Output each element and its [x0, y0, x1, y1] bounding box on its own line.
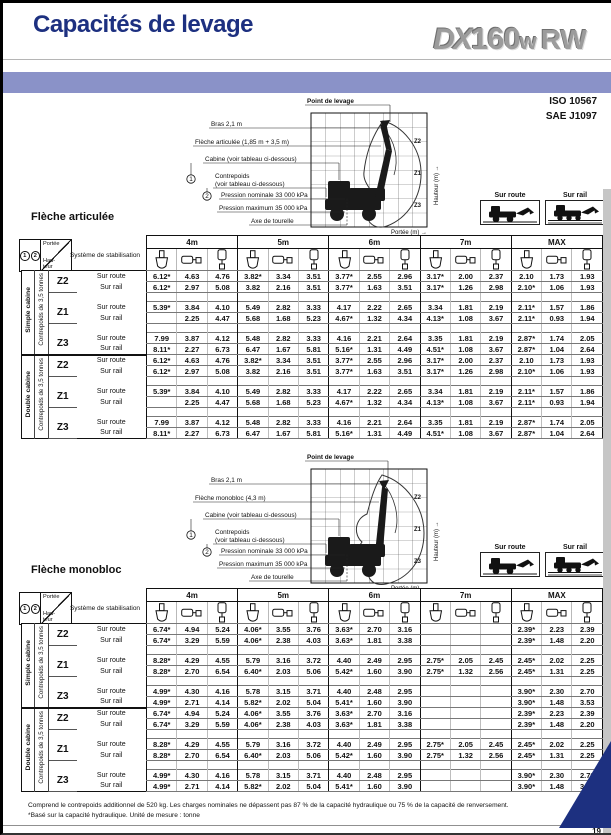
capacity-value	[542, 646, 572, 655]
capacity-value: 3.38	[390, 719, 420, 730]
capacity-value	[207, 377, 237, 386]
capacity-value: 2.00	[450, 355, 480, 366]
capacity-value: 2.70	[359, 708, 389, 719]
road-machine-icon	[480, 552, 540, 577]
reach-column-header: 5m	[238, 589, 329, 602]
capacity-value: 5.42*	[329, 666, 359, 677]
capacity-value	[147, 761, 177, 770]
capacity-value: 3.84	[177, 386, 207, 397]
capacity-value	[390, 761, 420, 770]
label-lift-point: Point de levage	[307, 454, 354, 461]
capacity-value: 2.10	[511, 355, 541, 366]
capacity-value: 2.02	[268, 781, 298, 792]
capacity-value: 4.16	[207, 686, 237, 697]
capacity-value: 0.93	[542, 313, 572, 324]
capacity-value: 1.32	[450, 666, 480, 677]
capacity-value: 5.08	[207, 366, 237, 377]
capacity-value: 6.74*	[147, 635, 177, 646]
capacity-value: 2.30	[542, 686, 572, 697]
capacity-value: 5.41*	[329, 697, 359, 708]
capacity-value: 4.49	[390, 344, 420, 355]
capacity-value: 3.77*	[329, 355, 359, 366]
capacity-value: 4.30	[177, 770, 207, 781]
capacity-value: 3.90*	[511, 686, 541, 697]
capacity-value	[390, 377, 420, 386]
mode-label: Sur route	[77, 770, 147, 781]
mode-label: Sur route	[77, 624, 147, 635]
capacity-value	[329, 293, 359, 302]
stabilizer-system-label: Système de stabilisation	[65, 605, 145, 612]
capacity-value: 2.03	[268, 750, 298, 761]
capacity-value	[481, 635, 511, 646]
capacity-value	[450, 646, 480, 655]
label-arm: Bras 2,1 m	[211, 477, 242, 484]
capacity-value	[420, 697, 450, 708]
rail-machine-icon	[545, 200, 605, 225]
capacity-value	[359, 408, 389, 417]
capacity-value: 5.39*	[147, 302, 177, 313]
label-boom: Flèche monobloc (4,3 m)	[195, 495, 266, 502]
label-swing-axis: Axe de tourelle	[251, 574, 294, 581]
capacity-value: 6.12*	[147, 282, 177, 293]
mode-label: Sur rail	[77, 666, 147, 677]
label-max-pressure: Pression maximum 35 000 kPa	[219, 561, 308, 568]
mode-label: Sur rail	[77, 750, 147, 761]
capacity-value: 1.93	[572, 355, 603, 366]
capacity-value: 4.34	[390, 397, 420, 408]
capacity-value	[420, 324, 450, 333]
capacity-value	[481, 646, 511, 655]
capacity-value	[511, 324, 541, 333]
capacity-value: 1.32	[359, 313, 389, 324]
footer-divider	[3, 825, 611, 826]
capacity-value: 2.16	[268, 282, 298, 293]
capacity-value: 2.96	[390, 271, 420, 282]
capacity-value: 3.90	[390, 697, 420, 708]
capacity-value	[147, 408, 177, 417]
capacity-value: 4.29	[177, 739, 207, 750]
capacity-value: 8.11*	[147, 344, 177, 355]
capacity-value: 2.55	[359, 355, 389, 366]
corner-callout-1: 1	[20, 604, 30, 614]
capacity-value: 4.10	[207, 386, 237, 397]
capacity-value: 5.78	[238, 686, 268, 697]
capacity-value: 1.73	[542, 271, 572, 282]
capacity-value: 3.51	[298, 271, 328, 282]
capacity-value: 2.87*	[511, 428, 541, 439]
capacity-value	[238, 324, 268, 333]
capacity-value	[511, 408, 541, 417]
capacity-value: 2.71	[177, 697, 207, 708]
capacity-value: 2.48	[359, 770, 389, 781]
capacity-value: 5.24	[207, 708, 237, 719]
capacity-value: 2.39	[572, 624, 603, 635]
mode-label: Sur route	[77, 686, 147, 697]
logo-number: 160	[471, 21, 520, 56]
capacity-value: 3.55	[268, 708, 298, 719]
capacity-value: 4.94	[177, 624, 207, 635]
capacity-value: 1.67	[268, 344, 298, 355]
capacity-value	[420, 708, 450, 719]
mode-label: Sur route	[77, 739, 147, 750]
capacity-value: 3.67	[481, 313, 511, 324]
capacity-value: 2.75*	[420, 739, 450, 750]
mode-label: Sur rail	[77, 282, 147, 293]
capacity-value	[481, 686, 511, 697]
capacity-value: 2.19	[481, 302, 511, 313]
capacity-value	[147, 377, 177, 386]
label-boom: Flèche articulée (1,85 m + 3,5 m)	[195, 139, 289, 146]
capacity-value: 5.08	[207, 282, 237, 293]
capacity-value: 4.17	[329, 302, 359, 313]
capacity-value: 2.95	[390, 686, 420, 697]
label-nominal-pressure: Pression nominale 33 000 kPa	[221, 192, 308, 199]
capacity-value	[238, 646, 268, 655]
capacity-value: 3.35	[420, 333, 450, 344]
capacity-value: 2.02	[542, 655, 572, 666]
mode-label: Sur route	[77, 302, 147, 313]
mode-label: Sur route	[77, 708, 147, 719]
capacity-value: 3.72	[298, 739, 328, 750]
capacity-value: 4.13*	[420, 313, 450, 324]
capacity-value	[420, 635, 450, 646]
capacity-value: 2.39*	[511, 635, 541, 646]
capacity-value: 5.78	[238, 770, 268, 781]
capacity-value: 2.64	[572, 428, 603, 439]
capacity-value: 3.15	[268, 686, 298, 697]
capacity-value: 4.14	[207, 781, 237, 792]
capacity-value: 2.05	[572, 417, 603, 428]
capacity-value: 1.32	[359, 397, 389, 408]
capacity-value	[268, 646, 298, 655]
label-lift-point: Point de levage	[307, 98, 354, 105]
capacity-value	[359, 730, 389, 739]
cab-type-label: Double cabine	[22, 355, 35, 439]
mode-label: Sur rail	[77, 635, 147, 646]
svg-text:(voir tableau ci-dessous): (voir tableau ci-dessous)	[215, 537, 285, 544]
capacity-value: 8.11*	[147, 428, 177, 439]
capacity-value: 2.10*	[511, 282, 541, 293]
capacity-value: 3.71	[298, 686, 328, 697]
capacity-value: 3.29	[177, 719, 207, 730]
capacity-value: 3.35	[420, 417, 450, 428]
capacity-value: 5.06	[298, 666, 328, 677]
zone-label: Z3	[49, 333, 77, 355]
standard-sae: SAE J1097	[546, 109, 597, 124]
capacity-value: 4.47	[207, 397, 237, 408]
mode-rail: Sur rail	[545, 192, 605, 225]
capacity-value: 5.68	[238, 397, 268, 408]
capacity-value: 2.70	[359, 624, 389, 635]
capacity-value	[450, 708, 480, 719]
label-cab: Cabine (voir tableau ci-dessous)	[205, 156, 297, 163]
zone-z1-marker: Z1	[414, 171, 422, 177]
capacity-value	[147, 293, 177, 302]
capacity-value: 2.64	[572, 344, 603, 355]
capacity-value	[511, 761, 541, 770]
capacity-value: 3.33	[298, 333, 328, 344]
capacity-value	[511, 730, 541, 739]
capacity-value: 3.29	[177, 635, 207, 646]
reach-column-header: 7m	[420, 236, 511, 249]
capacity-value: 3.82*	[238, 355, 268, 366]
capacity-value: 3.34	[268, 271, 298, 282]
reach-column-header: 5m	[238, 236, 329, 249]
capacity-value: 3.90*	[511, 781, 541, 792]
capacity-value: 1.81	[450, 302, 480, 313]
cab-type-label: Simple cabine	[22, 624, 35, 708]
capacity-value	[420, 719, 450, 730]
capacity-value: 4.03	[298, 635, 328, 646]
capacity-value	[572, 408, 603, 417]
capacity-value: 6.54	[207, 666, 237, 677]
capacity-value: 2.19	[481, 417, 511, 428]
capacity-value: 6.73	[207, 428, 237, 439]
capacity-value: 7.99	[147, 417, 177, 428]
capacity-value: 2.05	[450, 655, 480, 666]
capacity-value: 3.51	[298, 282, 328, 293]
zone-label: Z3	[49, 770, 77, 792]
capacity-value	[481, 293, 511, 302]
capacity-value	[238, 377, 268, 386]
zone-label: Z1	[49, 655, 77, 677]
capacity-value: 2.03	[268, 666, 298, 677]
height-axis-label: Hauteur (m) →	[434, 521, 440, 561]
capacity-value: 1.81	[450, 417, 480, 428]
capacity-value: 3.51	[390, 366, 420, 377]
capacity-value	[268, 730, 298, 739]
capacity-value: 5.48	[238, 333, 268, 344]
capacity-value	[359, 293, 389, 302]
svg-text:1: 1	[189, 176, 193, 183]
capacity-value: 1.06	[542, 366, 572, 377]
capacity-value: 4.99*	[147, 781, 177, 792]
capacity-value: 4.94	[177, 708, 207, 719]
capacity-value: 2.45*	[511, 739, 541, 750]
capacity-value: 3.84	[177, 302, 207, 313]
capacity-value: 2.21	[359, 417, 389, 428]
standards-block: ISO 10567 SAE J1097	[546, 94, 597, 124]
capacity-value	[511, 293, 541, 302]
capacity-value: 2.45*	[511, 666, 541, 677]
capacity-value: 1.86	[572, 386, 603, 397]
zone-z2-marker: Z2	[414, 139, 422, 145]
capacity-value: 1.63	[359, 366, 389, 377]
capacity-value	[390, 730, 420, 739]
mode-label: Sur route	[77, 417, 147, 428]
capacity-value: 6.74*	[147, 624, 177, 635]
cab-type-label: Double cabine	[22, 708, 35, 792]
capacity-value: 3.90	[390, 666, 420, 677]
capacity-value: 4.67*	[329, 313, 359, 324]
capacity-value	[511, 677, 541, 686]
capacity-value	[450, 697, 480, 708]
capacity-value: 2.95	[390, 655, 420, 666]
capacity-table-monoblock: Simple cabineContrepoids de 3,5 tonnesZ2…	[21, 623, 603, 792]
section-title-monoblock: Flèche monobloc	[31, 564, 121, 576]
capacity-value: 2.95	[390, 770, 420, 781]
capacity-value: 2.02	[268, 697, 298, 708]
capacity-value: 1.04	[542, 344, 572, 355]
capacity-value	[511, 646, 541, 655]
capacity-value	[207, 324, 237, 333]
capacity-value	[420, 686, 450, 697]
capacity-value	[298, 293, 328, 302]
capacity-value: 2.20	[572, 719, 603, 730]
stabilizer-system-label: Système de stabilisation	[65, 252, 145, 259]
capacity-value: 2.39*	[511, 624, 541, 635]
section-title-articulated: Flèche articulée	[31, 211, 114, 223]
capacity-value: 4.51*	[420, 428, 450, 439]
capacity-value: 2.64	[390, 333, 420, 344]
capacity-value: 4.55	[207, 739, 237, 750]
capacity-value: 4.99*	[147, 686, 177, 697]
capacity-value	[572, 377, 603, 386]
capacity-value: 5.41*	[329, 781, 359, 792]
capacity-value: 4.14	[207, 697, 237, 708]
capacity-value: 1.04	[542, 428, 572, 439]
capacity-value: 4.34	[390, 313, 420, 324]
capacity-value	[147, 313, 177, 324]
zone-label: Z2	[49, 271, 77, 293]
capacity-value	[420, 646, 450, 655]
mode-rail-label: Sur rail	[545, 192, 605, 199]
capacity-value	[298, 324, 328, 333]
mode-label: Sur rail	[77, 366, 147, 377]
capacity-value: 2.70	[177, 750, 207, 761]
capacity-value: 3.16	[390, 708, 420, 719]
capacity-value: 2.64	[390, 417, 420, 428]
capacity-value: 1.67	[268, 428, 298, 439]
mode-rail: Sur rail	[545, 544, 605, 577]
capacity-value: 2.56	[481, 750, 511, 761]
capacity-value: 4.76	[207, 355, 237, 366]
capacity-value: 6.73	[207, 344, 237, 355]
capacity-value	[481, 624, 511, 635]
label-max-pressure: Pression maximum 35 000 kPa	[219, 205, 308, 212]
capacity-value: 2.25	[572, 655, 603, 666]
capacity-value: 8.28*	[147, 739, 177, 750]
capacity-value: 5.68	[238, 313, 268, 324]
capacity-value	[268, 293, 298, 302]
capacity-value	[481, 377, 511, 386]
capacity-value: 2.16	[268, 366, 298, 377]
capacity-value: 2.65	[390, 386, 420, 397]
capacity-value: 2.55	[359, 271, 389, 282]
capacity-value: 1.57	[542, 386, 572, 397]
capacity-value: 4.40	[329, 770, 359, 781]
capacity-value	[298, 408, 328, 417]
capacity-value: 1.31	[542, 666, 572, 677]
capacity-value: 2.27	[177, 344, 207, 355]
capacity-value: 4.63	[177, 271, 207, 282]
capacity-value: 3.90*	[511, 770, 541, 781]
capacity-value: 6.12*	[147, 355, 177, 366]
zone-z3-marker: Z3	[414, 559, 422, 565]
capacity-value	[268, 761, 298, 770]
reach-column-header: MAX	[511, 589, 602, 602]
capacity-value: 3.16	[390, 624, 420, 635]
capacity-value: 5.04	[298, 781, 328, 792]
capacity-value: 4.99*	[147, 770, 177, 781]
label-counterweight: Contrepoids	[215, 173, 249, 180]
capacity-value: 1.26	[450, 366, 480, 377]
counterweight-label: Contrepoids de 3,5 tonnes	[35, 624, 49, 708]
capacity-value	[329, 730, 359, 739]
capacity-value: 1.60	[359, 750, 389, 761]
capacity-value: 1.48	[542, 719, 572, 730]
capacity-value: 2.25	[177, 397, 207, 408]
capacity-value	[481, 781, 511, 792]
capacity-value: 2.22	[359, 302, 389, 313]
counterweight-label: Contrepoids de 3,5 tonnes	[35, 355, 49, 439]
capacity-value: 1.74	[542, 417, 572, 428]
capacity-value	[329, 761, 359, 770]
page-title: Capacités de levage	[33, 11, 253, 39]
capacity-value	[238, 730, 268, 739]
capacity-value: 8.28*	[147, 666, 177, 677]
capacity-value	[390, 677, 420, 686]
capacity-value: 4.47	[207, 313, 237, 324]
capacity-value	[298, 646, 328, 655]
capacity-value: 1.32	[450, 750, 480, 761]
capacity-value: 3.77*	[329, 271, 359, 282]
capacity-value: 4.06*	[238, 708, 268, 719]
capacity-value	[481, 697, 511, 708]
capacity-value	[207, 293, 237, 302]
capacity-value	[481, 719, 511, 730]
capacity-value: 2.87*	[511, 344, 541, 355]
capacity-value	[450, 677, 480, 686]
capacity-value: 2.82	[268, 302, 298, 313]
mode-road-label: Sur route	[480, 544, 540, 551]
capacity-value	[420, 761, 450, 770]
reach-column-header: 6m	[329, 236, 420, 249]
corner-callout-2: 2	[31, 604, 41, 614]
capacity-value: 1.81	[359, 635, 389, 646]
capacity-value	[390, 408, 420, 417]
capacity-value: 5.79	[238, 739, 268, 750]
capacity-value	[572, 324, 603, 333]
capacity-value	[450, 408, 480, 417]
capacity-value: 3.33	[298, 302, 328, 313]
svg-text:2: 2	[205, 193, 209, 200]
capacity-value	[450, 781, 480, 792]
capacity-value: 4.67*	[329, 397, 359, 408]
capacity-value: 3.87	[177, 417, 207, 428]
mode-label: Sur rail	[77, 313, 147, 324]
capacity-value: 4.55	[207, 655, 237, 666]
capacity-value	[359, 377, 389, 386]
capacity-value: 4.51*	[420, 344, 450, 355]
capacity-value: 4.40	[329, 686, 359, 697]
capacity-value: 2.19	[481, 386, 511, 397]
capacity-value: 1.26	[450, 282, 480, 293]
capacity-value: 4.16	[329, 417, 359, 428]
capacity-value	[572, 293, 603, 302]
capacity-value: 1.81	[450, 386, 480, 397]
capacity-value: 3.34	[268, 355, 298, 366]
capacity-value: 2.11*	[511, 386, 541, 397]
capacity-value: 2.98	[481, 366, 511, 377]
mode-label: Sur rail	[77, 397, 147, 408]
capacity-value: 5.59	[207, 635, 237, 646]
capacity-value: 2.87*	[511, 417, 541, 428]
capacity-value: 4.16	[329, 333, 359, 344]
capacity-value: 2.05	[572, 333, 603, 344]
capacity-value: 3.33	[298, 386, 328, 397]
capacity-value: 1.63	[359, 282, 389, 293]
